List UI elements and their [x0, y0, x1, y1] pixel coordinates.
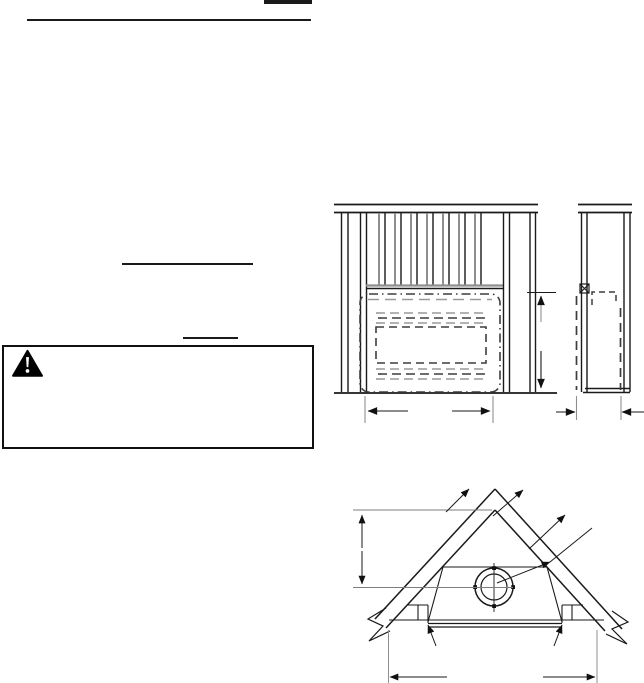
left-rafter-inner [386, 510, 495, 628]
front-height-dimension [527, 293, 556, 389]
cripple-studs [379, 213, 481, 285]
manual-page [0, 0, 644, 683]
fireplace-dashed-outline [360, 294, 500, 392]
left-rafter-break [368, 608, 390, 641]
attic-framing-view [353, 489, 628, 683]
firestop-support-box [428, 567, 562, 622]
opening-corner-leaders [428, 625, 562, 646]
peak-height-dimension [353, 510, 513, 588]
attic-width-dimension [389, 630, 598, 683]
right-rafter-inner [495, 510, 605, 631]
fireplace-profile-dashed [577, 292, 621, 390]
left-rafter-outer [375, 489, 495, 619]
side-depth-dimension [556, 396, 644, 420]
framing-side-view [556, 205, 644, 421]
front-width-dimension [365, 396, 493, 423]
slope-dimension-ticks [446, 489, 565, 549]
pipe-leader-line [497, 528, 592, 583]
framing-front-view [334, 205, 557, 424]
installation-diagrams [0, 0, 644, 683]
